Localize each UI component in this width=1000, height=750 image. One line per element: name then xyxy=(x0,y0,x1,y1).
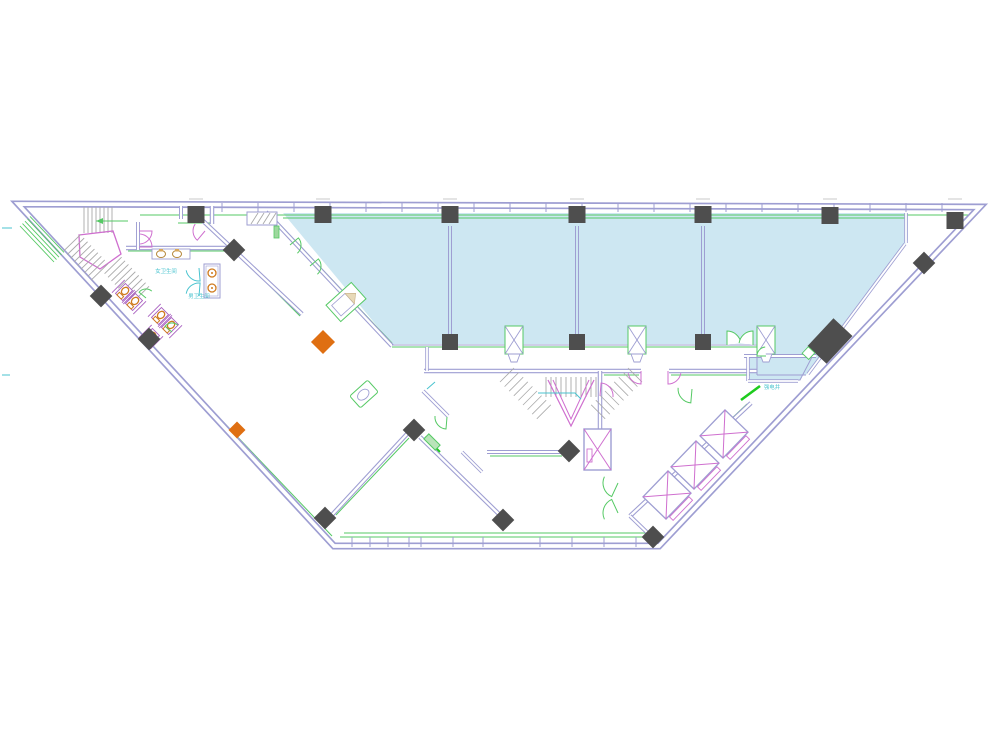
structural-column xyxy=(569,334,585,350)
basin-tap xyxy=(175,249,179,252)
basin-drain xyxy=(211,272,213,274)
structural-column xyxy=(822,207,839,224)
room-label-womens-restroom: 女卫生间 xyxy=(155,267,177,275)
wash-basin xyxy=(157,251,166,258)
structural-column xyxy=(569,206,586,223)
threshold xyxy=(274,226,279,238)
structural-column xyxy=(442,334,458,350)
structural-column xyxy=(695,334,711,350)
basin-drain xyxy=(211,287,213,289)
structural-column xyxy=(947,212,964,229)
structural-column xyxy=(315,206,332,223)
wash-basin xyxy=(173,251,182,258)
room-label-mens-restroom: 男卫生间 xyxy=(188,292,210,300)
background-layer xyxy=(0,0,1000,750)
floor-plan-canvas: 女卫生间 男卫生间 强电井 xyxy=(0,0,1000,750)
basin-tap xyxy=(159,249,163,252)
structural-column xyxy=(442,206,459,223)
floor-plan-page: 女卫生间 男卫生间 强电井 xyxy=(0,0,1000,750)
structural-column xyxy=(695,206,712,223)
structural-column xyxy=(188,206,205,223)
room-label-electrical-shaft: 强电井 xyxy=(764,383,781,391)
